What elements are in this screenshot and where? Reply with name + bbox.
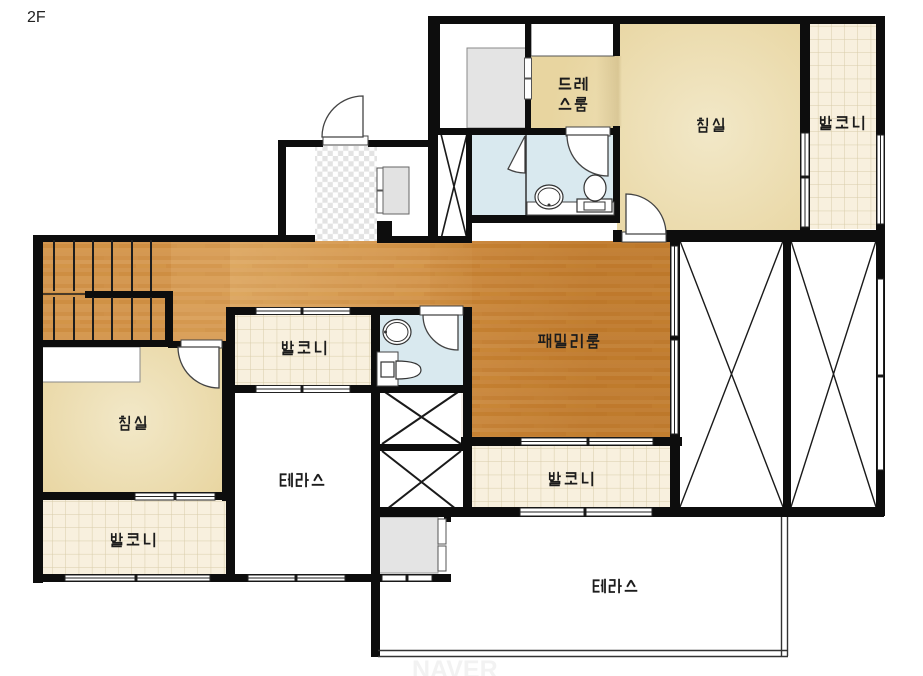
svg-text:2F: 2F	[27, 9, 46, 26]
svg-text:NAVER: NAVER	[412, 656, 498, 676]
